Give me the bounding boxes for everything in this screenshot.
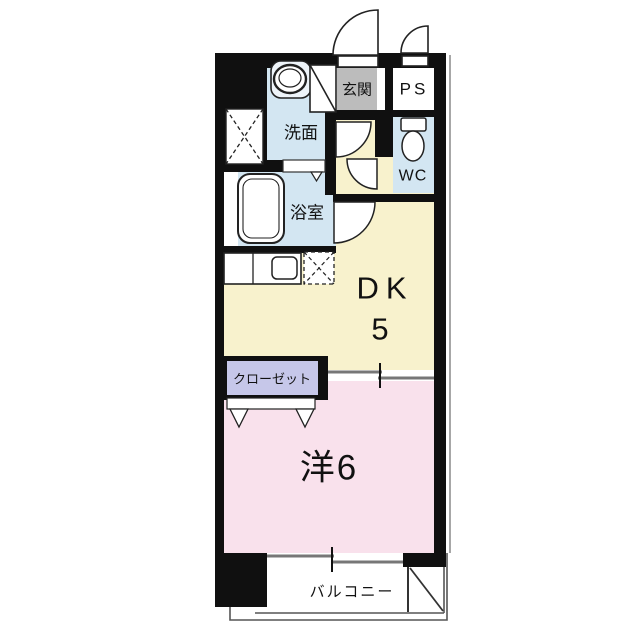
dk-label: DK [356,271,413,306]
bathtub [224,172,284,246]
shoe-cabinet [310,65,336,112]
bath-door-band [283,160,325,172]
toilet-bowl [402,131,424,161]
toilet [401,118,426,161]
bathtub-outer [238,174,284,243]
wall-ps-left [385,53,393,110]
kitchen-sink [272,257,297,279]
floorplan-drawing: 玄関 PS 洗面 WC 浴室 DK 5 クローゼット 洋6 バルコニー [0,0,640,639]
entrance-label: 玄関 [342,82,372,99]
closet-door-band [227,398,315,409]
washer-space [226,109,263,164]
fridge-space [304,252,334,284]
wc-door-opening [385,157,393,194]
washroom-label: 洗面 [284,124,318,143]
wall-wc-left [375,110,393,157]
kitchen-counter [224,253,301,284]
toilet-tank [401,118,426,131]
entrance-door-swing [333,10,378,55]
wall-bottomright-block [403,553,446,567]
dk-size-label: 5 [371,312,388,347]
bathroom-label: 浴室 [290,204,324,223]
ps-door-leaf [402,56,428,66]
wall-bottomleft-block [215,553,267,607]
entrance-door-leaf [338,56,378,67]
wall-right [434,53,446,567]
wall-entrance-step [333,110,377,120]
closet-label: クローゼット [233,372,311,387]
bath-step [224,172,238,246]
western-room-label: 洋6 [300,449,358,488]
washbasin [271,61,311,98]
ps-door-swing [401,26,428,53]
wall-below-bath [215,246,336,253]
balcony-partition-diagonal [410,568,443,611]
pipe-space-label: PS [400,80,429,99]
floorplan-canvas: 玄関 PS 洗面 WC 浴室 DK 5 クローゼット 洋6 バルコニー [0,0,640,639]
balcony-label: バルコニー [310,584,395,601]
wc-label: WC [399,168,428,185]
wall-hall-left [325,110,336,195]
wall-below-washroom [267,160,283,172]
wall-below-hall [333,194,446,202]
